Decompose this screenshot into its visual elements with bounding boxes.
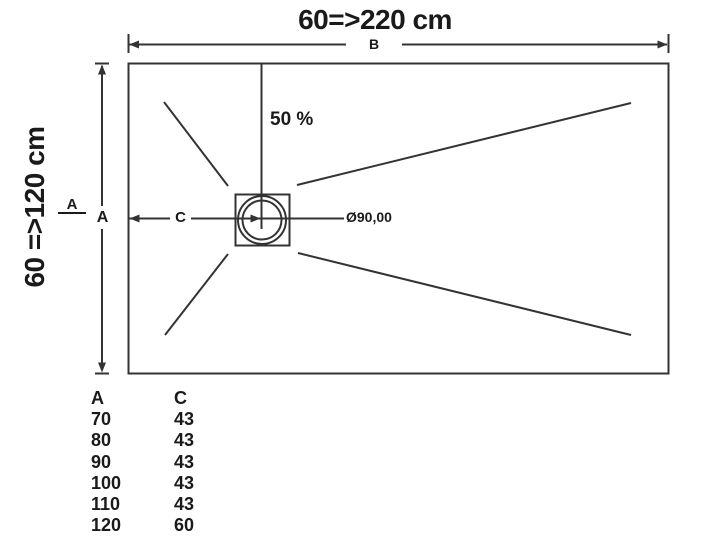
table-row: 110 43	[91, 494, 214, 515]
size-table: A C 70 43 80 43 90 43 100 43 110 43 120 …	[91, 388, 214, 536]
slope-percent-label: 50 %	[270, 109, 313, 131]
height-range-title: 60 =>120 cm	[19, 122, 49, 292]
dimension-label-c: C	[170, 209, 191, 227]
width-range-title: 60=>220 cm	[280, 4, 470, 36]
size-table-header-c: C	[174, 388, 214, 409]
table-row: 70 43	[91, 409, 214, 430]
arrowhead-a-top	[98, 65, 106, 75]
table-cell-c: 60	[174, 515, 214, 536]
table-cell-a: 120	[91, 515, 174, 536]
arrowhead-b-right	[658, 41, 668, 49]
slope-line-bottom-right	[298, 253, 631, 335]
table-row: 90 43	[91, 452, 214, 473]
slope-line-top-right	[297, 103, 631, 185]
table-cell-a: 90	[91, 452, 174, 473]
table-cell-c: 43	[174, 452, 214, 473]
shower-tray-dimension-diagram: 60=>220 cm 60 =>120 cm B A A C 50 % Ø90,…	[0, 0, 720, 540]
table-cell-c: 43	[174, 430, 214, 451]
size-table-header-row: A C	[91, 388, 214, 409]
table-cell-c: 43	[174, 494, 214, 515]
table-row: 80 43	[91, 430, 214, 451]
size-table-header-a: A	[91, 388, 174, 409]
table-cell-c: 43	[174, 473, 214, 494]
table-row: 100 43	[91, 473, 214, 494]
arrowhead-c-left	[130, 215, 140, 223]
arrowhead-a-bottom	[98, 363, 106, 373]
dimension-label-a: A	[92, 206, 113, 229]
table-cell-a: 100	[91, 473, 174, 494]
table-row: 120 60	[91, 515, 214, 536]
table-cell-a: 80	[91, 430, 174, 451]
dimension-label-b: B	[346, 36, 402, 53]
arrowhead-b-left	[129, 41, 139, 49]
slope-line-top-left	[164, 102, 228, 186]
table-cell-a: 70	[91, 409, 174, 430]
slope-line-bottom-left	[165, 254, 228, 335]
table-cell-c: 43	[174, 409, 214, 430]
table-cell-a: 110	[91, 494, 174, 515]
drain-diameter-label: Ø90,00	[346, 209, 392, 225]
section-marker-a: A	[58, 197, 86, 214]
arrowhead-c-center	[251, 215, 261, 223]
